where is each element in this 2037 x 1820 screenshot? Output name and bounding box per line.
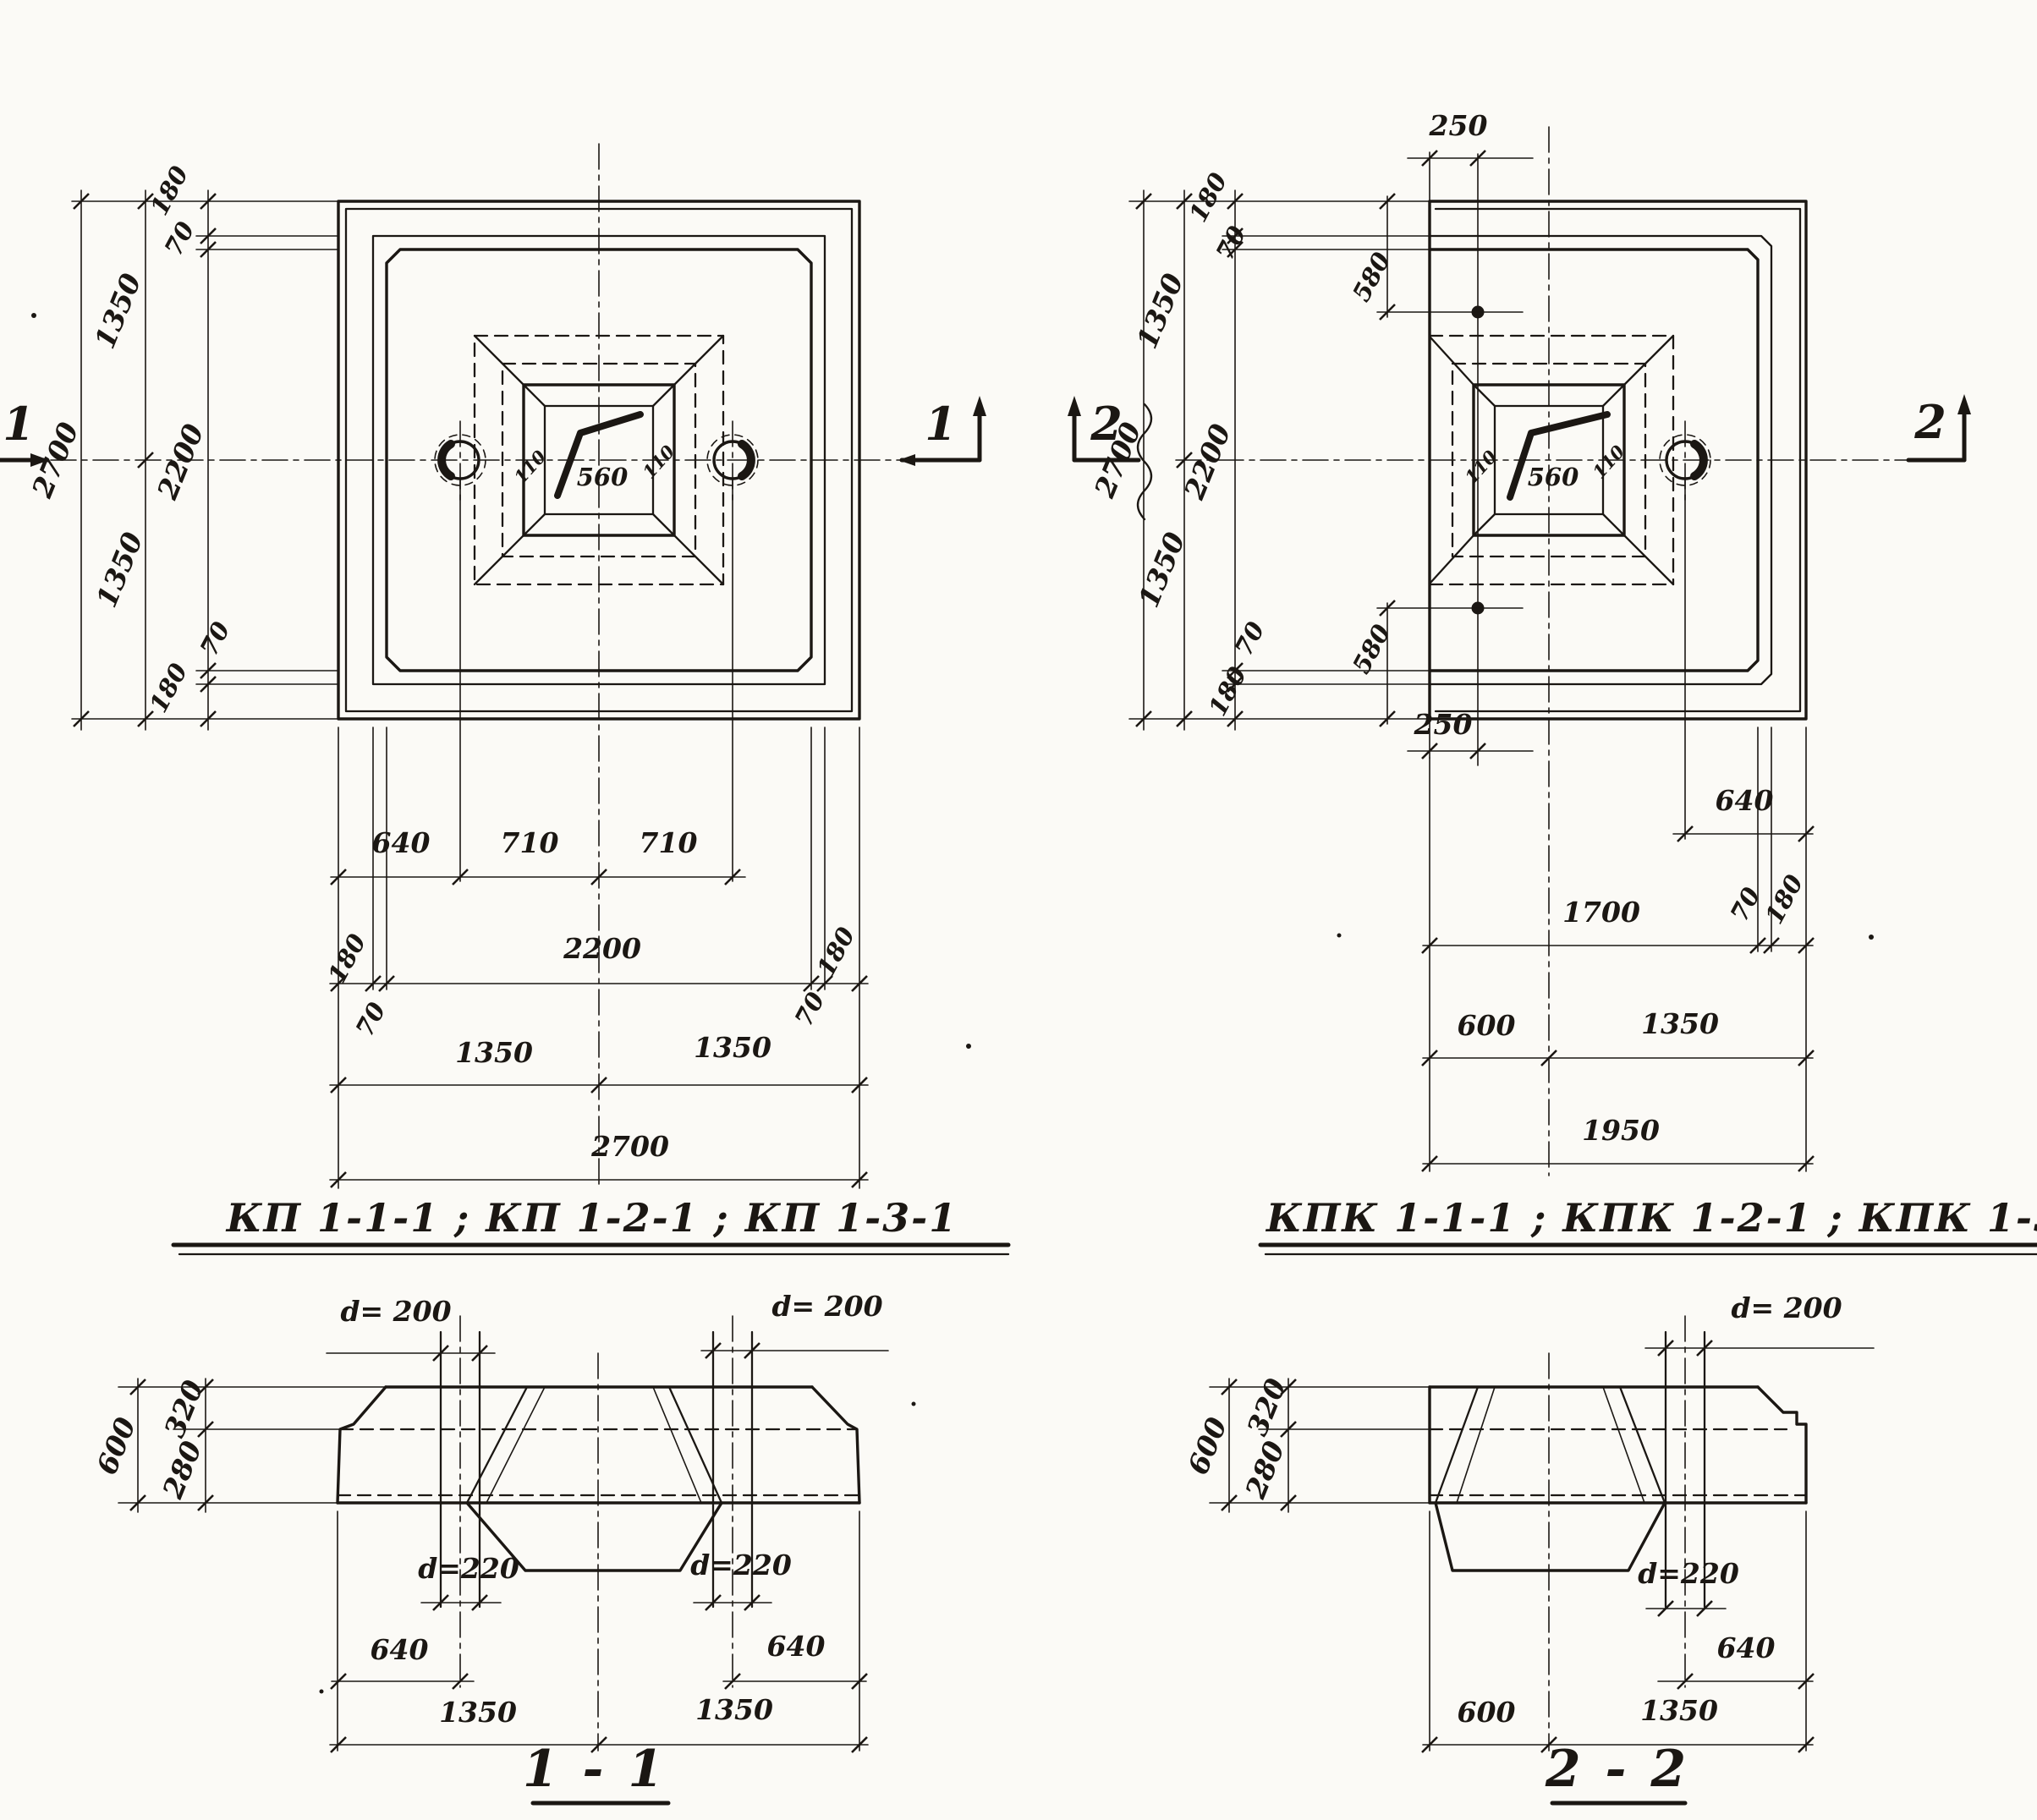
rp-dim-half-bottom: 1350 (1132, 528, 1192, 612)
s1-label: 1 - 1 (523, 1740, 667, 1799)
s1-lower: 280 (156, 1436, 208, 1503)
lp-dim-edge-br: 180 (811, 923, 860, 981)
rp-dim-hole-y-bottom: 580 (1347, 620, 1396, 678)
lp-dim-rib-bl: 70 (350, 998, 392, 1042)
s2-lower: 280 (1238, 1436, 1291, 1503)
rp-dim-socket-offset: 600 (1458, 1009, 1516, 1042)
s1-off-r: 640 (767, 1630, 826, 1663)
lp-dim-inner-left: 2200 (151, 419, 211, 505)
rp-dim-hole-y-top: 580 (1347, 248, 1396, 306)
section2-arrow-right (1957, 394, 1971, 414)
lp-dim-edge-top: 180 (145, 162, 194, 220)
section-1-1: d= 200 d= 200 600 320 280 d=220 d=220 64… (90, 1290, 888, 1803)
rp-dim-overall-w: 1950 (1582, 1114, 1660, 1147)
s1-height: 600 (90, 1412, 142, 1479)
rp-dim-inner-w: 1700 (1562, 896, 1640, 929)
rp-dim-hole-offset: 640 (1716, 784, 1774, 817)
lp-dim-overall-bottom: 2700 (590, 1130, 669, 1163)
s1-half-r: 1350 (695, 1693, 773, 1726)
s1-hole-top-l: d= 200 (340, 1295, 451, 1328)
s1-off-l: 640 (371, 1633, 429, 1666)
section2-mark-right: 2 (1913, 395, 1946, 449)
engineering-drawing: 2700 1350 1350 2200 180 70 70 180 640 71… (0, 0, 2037, 1820)
rp-dim-rib-right: 70 (1725, 883, 1766, 927)
s1-hole-bottom-r: d=220 (690, 1549, 792, 1582)
rp-dim-rib-top: 70 (1211, 222, 1252, 266)
scan-artifacts (31, 313, 1874, 1694)
s2-hole-top: d= 200 (1731, 1291, 1842, 1324)
title-left: КП 1-1-1 ; КП 1-2-1 ; КП 1-3-1 (225, 1195, 958, 1241)
section2-mark-left: 2 (1090, 397, 1123, 451)
lp-dim-edge-bl: 180 (322, 929, 371, 988)
s2-hole-bottom: d=220 (1638, 1557, 1739, 1590)
titles: КП 1-1-1 ; КП 1-2-1 ; КП 1-3-1 КПК 1-1-1… (173, 1195, 2037, 1254)
rp-dim-half-b: 1350 (1641, 1007, 1719, 1040)
section1-mark-right: 1 (925, 397, 957, 451)
lp-dim-half-br: 1350 (694, 1031, 771, 1064)
lp-dim-inner-bottom: 2200 (563, 932, 641, 965)
s1-hole-top-r: d= 200 (771, 1290, 882, 1323)
lp-dim-half-bl: 1350 (455, 1036, 533, 1069)
rp-dim-edge-right: 180 (1760, 870, 1809, 929)
s2-socket-off: 600 (1458, 1696, 1516, 1729)
s2-label: 2 - 2 (1545, 1740, 1689, 1799)
rp-socket-width: 560 (1528, 463, 1579, 491)
section-2-2: d= 200 600 320 280 d=220 640 600 1350 2 … (1181, 1291, 1874, 1803)
s2-half: 1350 (1640, 1694, 1718, 1727)
lp-dim-half-top: 1350 (88, 269, 148, 354)
plan-left: 2700 1350 1350 2200 180 70 70 180 640 71… (0, 144, 986, 1188)
s1-half-l: 1350 (439, 1696, 517, 1729)
section2-arrow-left (1068, 396, 1081, 416)
rp-dim-half-top: 1350 (1130, 269, 1190, 354)
blueprint-sheet: 2700 1350 1350 2200 180 70 70 180 640 71… (0, 0, 2037, 1820)
lp-dim-half-bottom: 1350 (90, 528, 150, 612)
lp-dim-rib-top: 70 (159, 217, 200, 261)
s1-hole-bottom-l: d=220 (418, 1552, 519, 1585)
title-right: КПК 1-1-1 ; КПК 1-2-1 ; КПК 1-3-1 (1265, 1195, 2037, 1241)
lp-dim-hole-spacing-l: 710 (501, 826, 559, 859)
rp-dim-edge-top: 180 (1183, 168, 1233, 227)
s2-height: 600 (1181, 1412, 1233, 1479)
lp-socket-width: 560 (577, 463, 629, 491)
s2-socket-void (1436, 1503, 1665, 1571)
rp-dim-hole-x-bottom: 250 (1414, 708, 1473, 741)
rp-dim-hole-x-top: 250 (1429, 109, 1488, 142)
lp-dim-rib-bottom: 70 (195, 617, 236, 661)
lp-dim-hole-spacing-r: 710 (640, 826, 698, 859)
section1-arrow-right (973, 396, 986, 416)
rp-dim-inner-h: 2200 (1178, 419, 1238, 505)
lp-dim-rib-br: 70 (789, 988, 831, 1032)
plan-right: 2700 1350 1350 2200 180 70 580 70 580 18… (1068, 109, 1971, 1176)
s2-off: 640 (1717, 1631, 1776, 1664)
lp-dim-hole-offset: 640 (372, 826, 431, 859)
s2-upper: 320 (1240, 1373, 1293, 1440)
lp-dim-edge-bottom: 180 (144, 659, 193, 717)
section1-mark-left: 1 (3, 397, 35, 451)
